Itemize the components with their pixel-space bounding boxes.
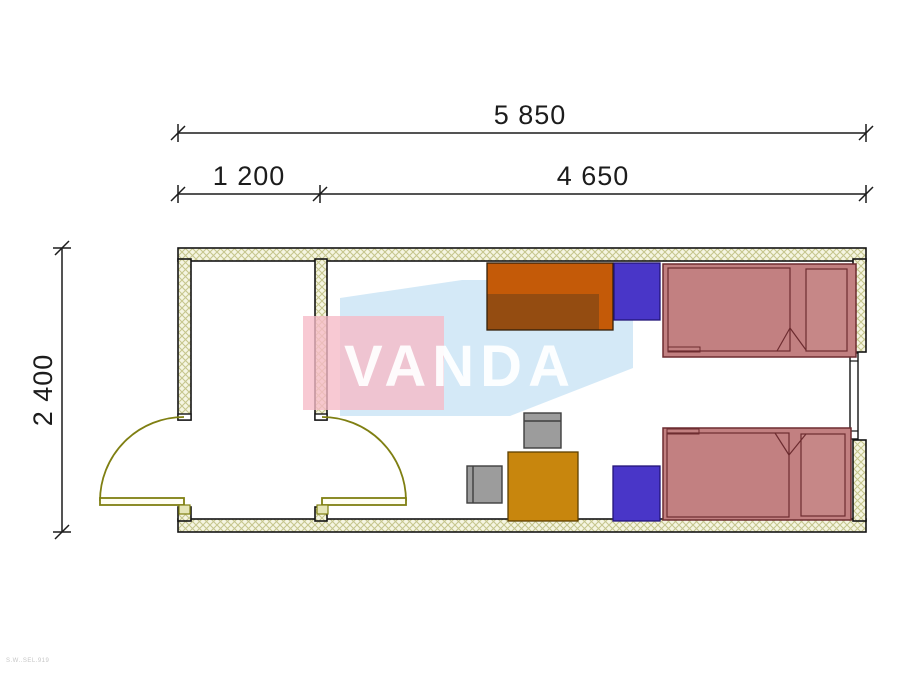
table (508, 452, 578, 521)
wall-right-lower (853, 440, 866, 521)
dim-overall-depth: 2 400 (28, 354, 58, 427)
chair-left (467, 466, 502, 503)
cabinet-top (614, 263, 660, 320)
dim-entry-width: 1 200 (213, 161, 286, 191)
interior-door-leaf (322, 498, 406, 505)
floorplan-drawing: 5 850 1 200 4 650 2 400 (0, 0, 924, 700)
exterior-door-leaf (100, 498, 184, 505)
corner-note: S.W..SEL.919 (6, 658, 49, 664)
bed-bottom (663, 428, 851, 520)
desk (487, 263, 613, 330)
wall-top (178, 248, 866, 261)
exterior-door-hinge (179, 505, 190, 514)
dim-overall-width: 5 850 (494, 100, 567, 130)
interior-door (317, 417, 406, 514)
interior-door-hinge (317, 505, 328, 514)
wall-end-caps (178, 414, 327, 420)
exterior-door (100, 417, 190, 514)
interior-door-arc (322, 417, 406, 501)
exterior-door-arc (100, 417, 184, 501)
watermark-text: VANDA (344, 334, 576, 399)
wall-left-upper (178, 259, 191, 420)
bed-top (663, 264, 856, 357)
floorplan-canvas: 5 850 1 200 4 650 2 400 (0, 0, 924, 700)
window (850, 353, 858, 439)
cabinet-bottom (613, 466, 660, 521)
dim-main-room-width: 4 650 (557, 161, 630, 191)
chair-top (524, 413, 561, 448)
